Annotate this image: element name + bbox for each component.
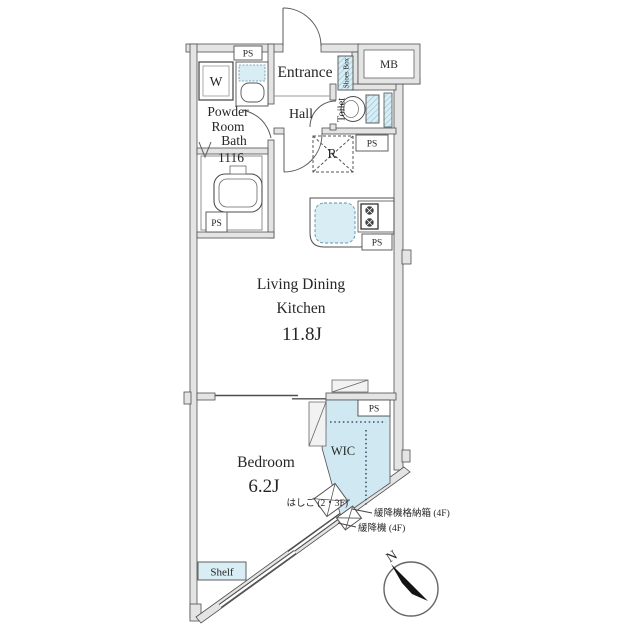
ldk-label-line1: Living Dining [257,276,346,293]
ps-label-wic: PS [369,405,380,415]
toilet-room-fixtures [341,93,392,127]
wic-label: WIC [331,444,355,458]
powder-room-label-line1: Powder [207,104,249,119]
right-wall-step [402,450,410,462]
ladder-label: はしご (2・3F) [287,497,349,509]
bedroom-size-label: 6.2J [248,476,279,497]
left-wall [190,44,197,618]
shoes-box: Shoes Box [338,56,353,90]
ps-label-toilet: PS [367,140,378,150]
meter-box-area: MB [358,44,420,84]
floorplan-svg: MB Shoes Box PS W PS R PS [0,0,640,640]
shoes-box-label: Shoes Box [343,57,351,88]
refrigerator-label: R [327,146,336,161]
refrigerator-space: R PS [313,135,388,172]
meter-box-label: MB [380,59,398,71]
ps-label-bath: PS [211,219,222,229]
vanity-counter [239,65,265,81]
ps-label-kitchen: PS [372,239,383,249]
stove-burner-2 [365,218,373,226]
partition-wall-left [197,393,215,400]
washing-machine-label: W [210,74,223,89]
compass: N [384,548,438,616]
bathtub [214,174,262,212]
bath-area: PS [201,156,262,232]
escape-device-label: 緩降機 (4F) [358,522,405,534]
toilet-door-arc [310,101,336,127]
toilet-tank [366,95,379,123]
stove-burner-1 [365,206,373,214]
toilet-label: Toilet [337,98,348,122]
entrance-door-arc [283,8,321,46]
floorplan-canvas: MB Shoes Box PS W PS R PS [0,0,640,640]
right-wall [394,78,403,470]
compass-needle [391,564,428,601]
hall-label: Hall [289,107,313,122]
vanity [236,62,268,106]
top-wall-right [321,44,360,52]
ps-label-top: PS [243,50,254,60]
wic-top-wall [326,393,396,400]
left-wall-bump [184,392,191,404]
toilet-top-wall [352,84,396,90]
kitchen-sink [315,203,355,243]
closet-door-leaf-a [332,380,368,392]
ldk-size-label: 11.8J [282,324,322,345]
toilet-left-wall-lower [330,124,336,130]
compass-north-label: N [384,548,401,566]
hall-ldk-wall-left [274,128,284,134]
hall-door-arc [284,134,322,172]
kitchen-counter: PS [310,198,394,250]
powder-room-label-line2: Room [211,119,245,134]
bath-label-line1: Bath [221,133,247,148]
entrance-label: Entrance [277,64,332,81]
right-wall-jog [402,250,411,264]
powder-hall-wall-lower [268,140,274,238]
ldk-label-line2: Kitchen [276,300,325,317]
vanity-basin [241,83,264,102]
shelf-box: Shelf [198,562,246,580]
bath-label-line2: 1116 [218,150,244,165]
toilet-side-counter [384,93,392,127]
shelf-label: Shelf [210,567,234,579]
bath-ldk-wall [197,232,274,238]
closet-door-leaf-b [309,402,326,446]
bath-faucet [230,166,246,174]
toilet-left-wall-upper [330,84,336,100]
powder-hall-wall-upper [268,44,274,104]
escape-box-label: 緩降機格納箱 (4F) [374,507,450,519]
bedroom-label: Bedroom [237,454,295,471]
